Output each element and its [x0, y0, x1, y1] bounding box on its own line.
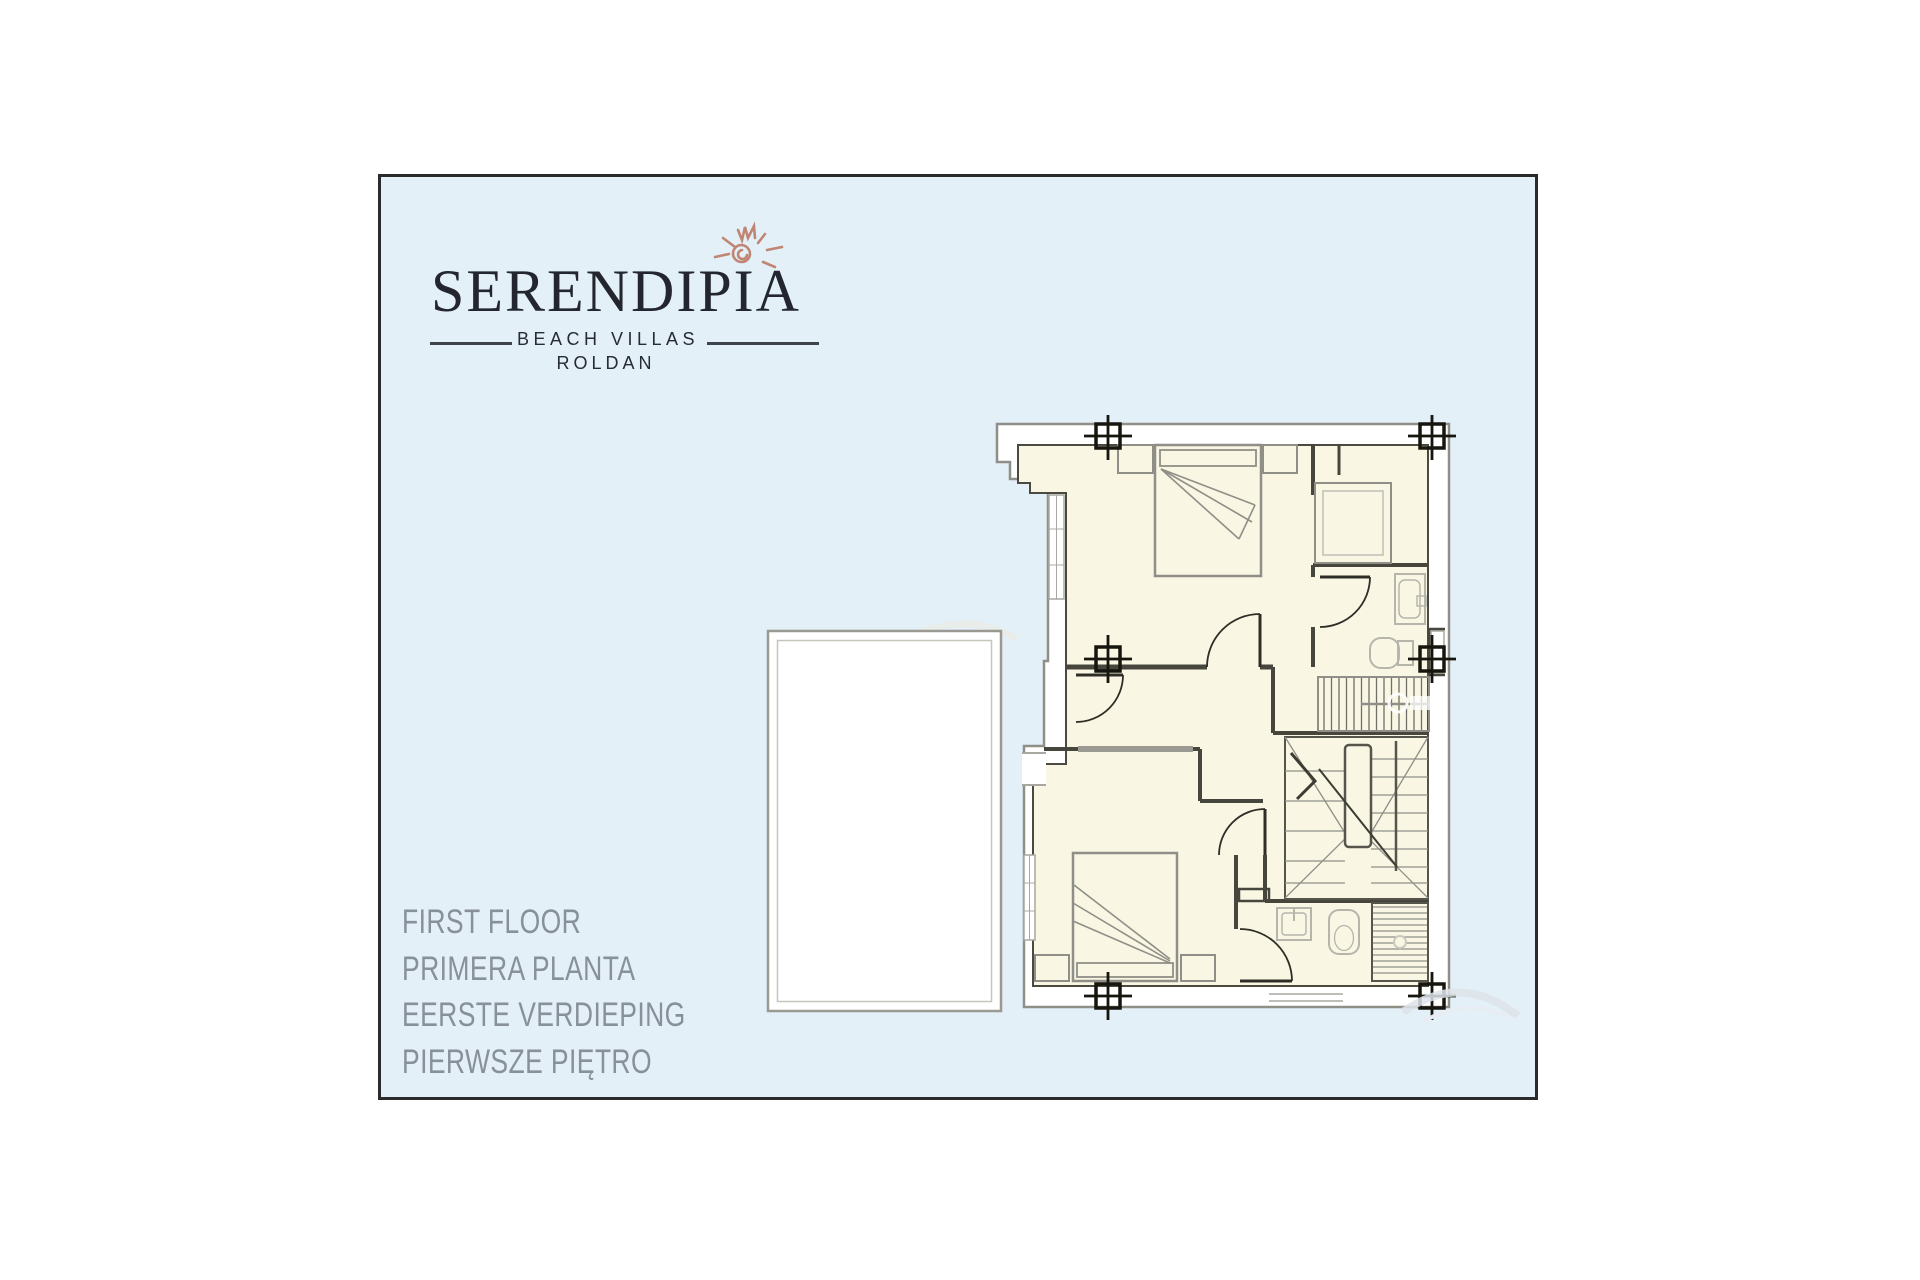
floor-plan [761, 415, 1521, 1027]
terrace-roof [768, 631, 1001, 1011]
floor-labels: FIRST FLOOR PRIMERA PLANTA EERSTE VERDIE… [402, 899, 686, 1085]
floor-label-es: PRIMERA PLANTA [402, 946, 686, 993]
logo-subtitle: BEACH VILLAS [508, 329, 708, 350]
nightstand [1118, 445, 1153, 473]
logo-divider-right [707, 342, 819, 345]
logo-divider-left [430, 342, 512, 345]
logo-location: ROLDAN [506, 353, 706, 374]
floor-label-nl: EERSTE VERDIEPING [402, 992, 686, 1039]
brochure-panel: SERENDIPIA BEACH VILLAS ROLDAN FIRST FLO… [378, 174, 1538, 1100]
terrace-door [1022, 753, 1046, 785]
bed-pillow [1160, 450, 1256, 466]
floor-label-pl: PIERWSZE PIĘTRO [402, 1039, 686, 1086]
shower-drain [1394, 936, 1406, 948]
bed-footboard [1077, 963, 1173, 977]
nightstand [1035, 955, 1069, 981]
nightstand [1263, 445, 1297, 473]
logo-title: SERENDIPIA [406, 261, 826, 321]
floor-label-en: FIRST FLOOR [402, 899, 686, 946]
nightstand [1181, 955, 1215, 981]
screenshot-root: SERENDIPIA BEACH VILLAS ROLDAN FIRST FLO… [0, 0, 1920, 1280]
